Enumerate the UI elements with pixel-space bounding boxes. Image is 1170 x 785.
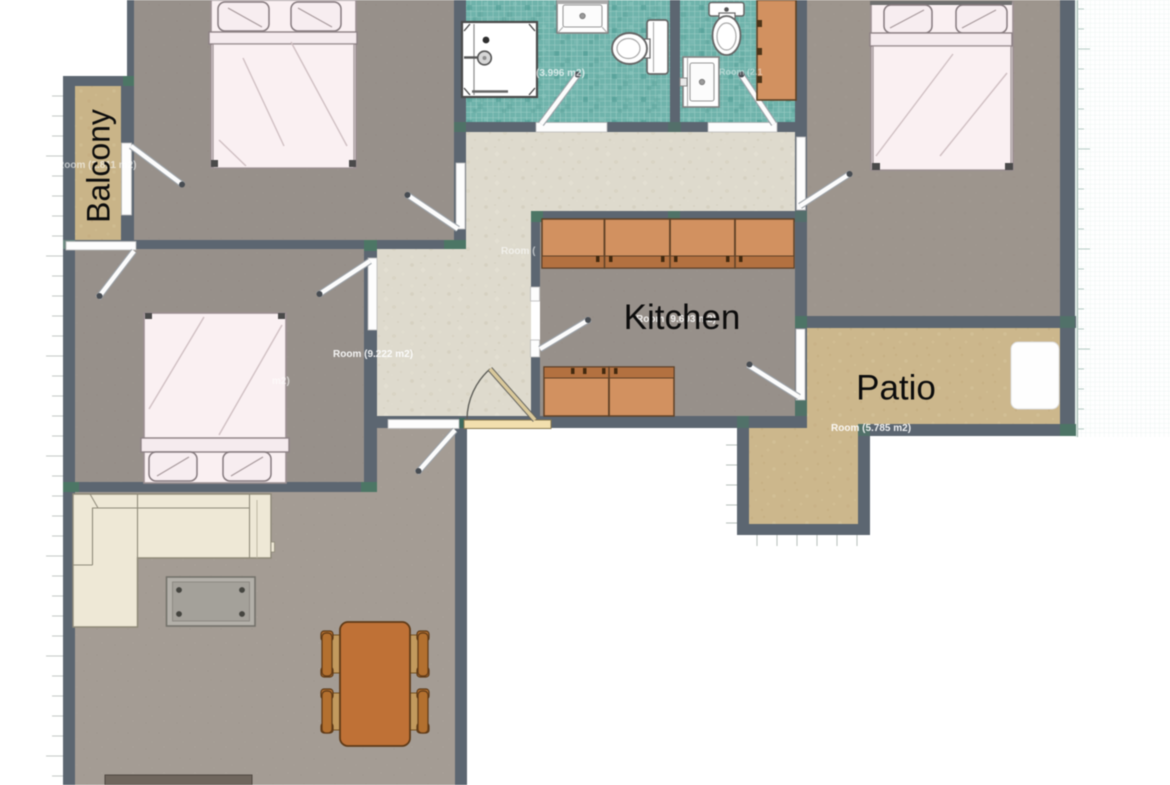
svg-text:Room (5.785 m2): Room (5.785 m2) bbox=[831, 423, 911, 434]
svg-text:Room (2.1: Room (2.1 bbox=[719, 67, 763, 77]
svg-text:Kitchen: Kitchen bbox=[624, 298, 741, 337]
svg-text:(3.996 m2): (3.996 m2) bbox=[536, 68, 585, 79]
svg-text:Room (: Room ( bbox=[501, 246, 536, 257]
svg-text:Patio: Patio bbox=[856, 369, 936, 408]
svg-text:Room (9.222 m2): Room (9.222 m2) bbox=[333, 349, 413, 360]
svg-text:m2): m2) bbox=[272, 376, 290, 387]
svg-text:Balcony: Balcony bbox=[80, 109, 116, 223]
